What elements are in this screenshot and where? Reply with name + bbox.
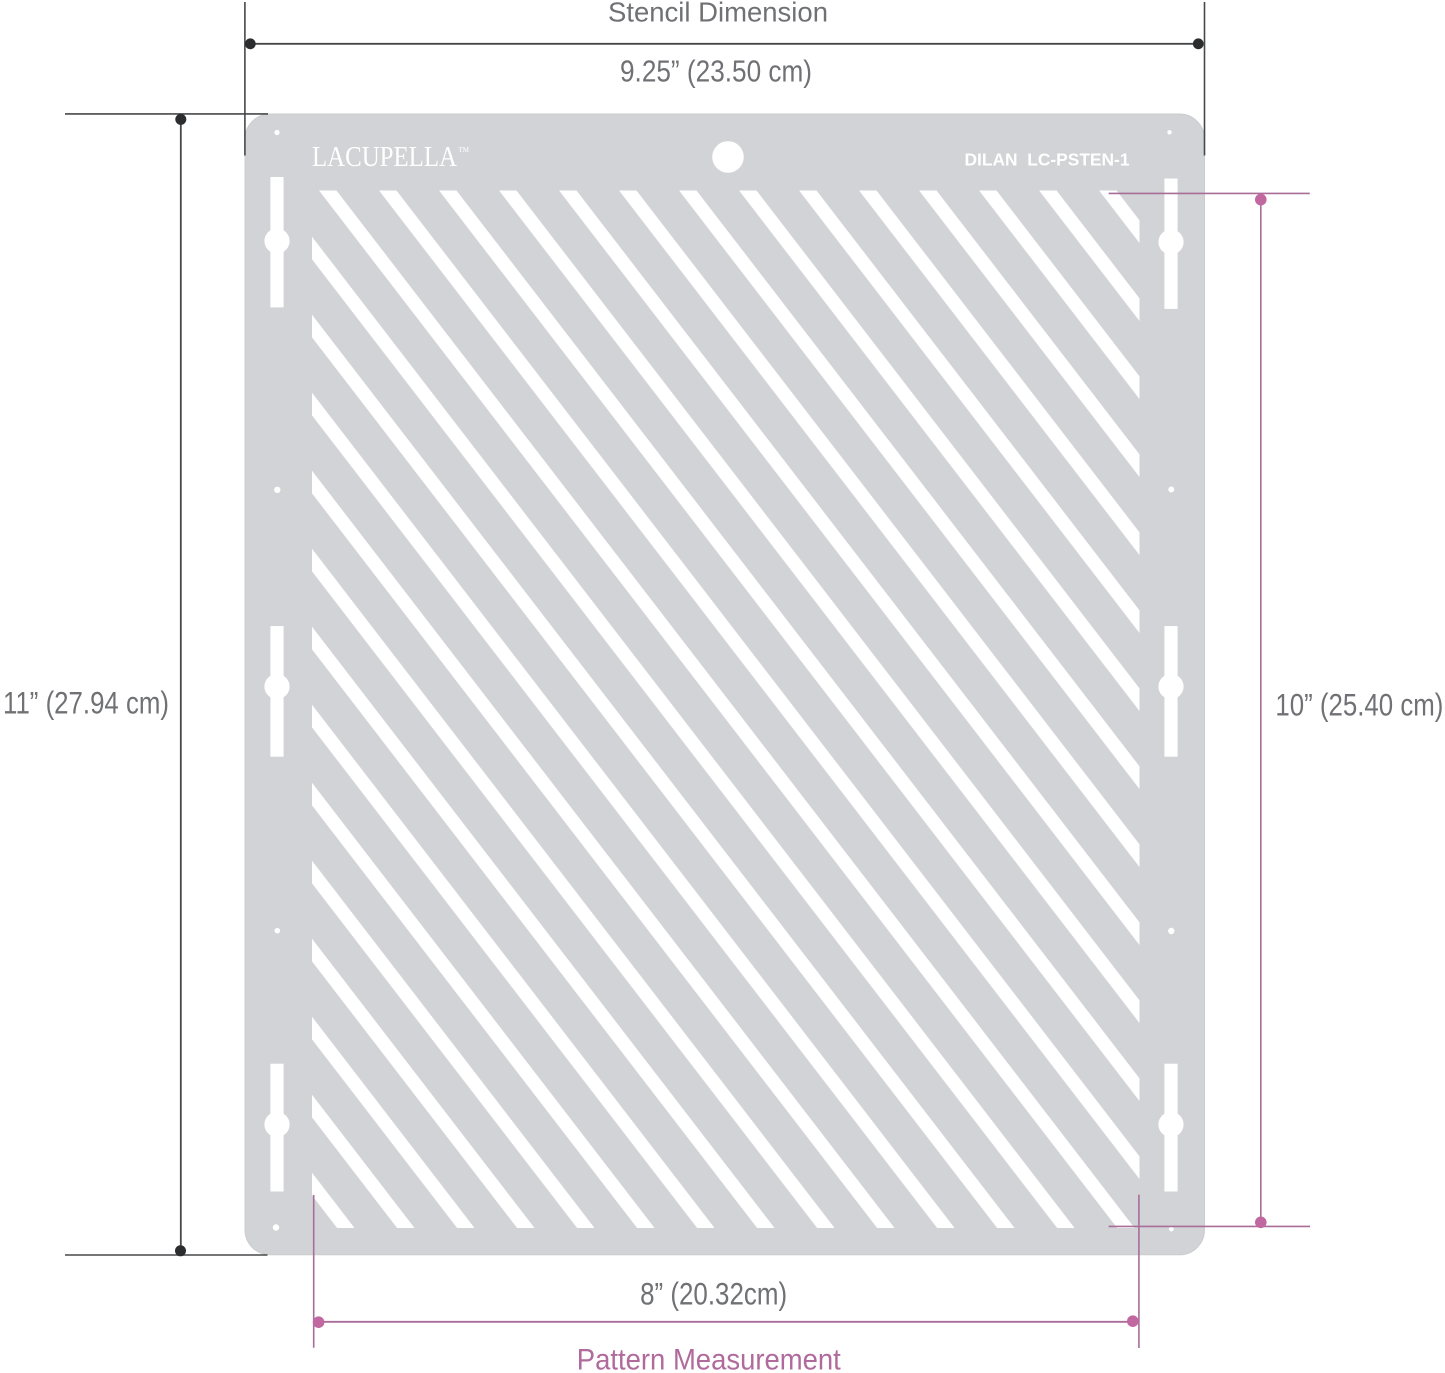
svg-text:Stencil Dimension: Stencil Dimension — [608, 0, 828, 28]
svg-text:TM: TM — [459, 146, 470, 154]
svg-text:8” (20.32cm): 8” (20.32cm) — [640, 1276, 787, 1312]
svg-text:Pattern Measurement: Pattern Measurement — [577, 1344, 842, 1373]
svg-text:10” (25.40 cm): 10” (25.40 cm) — [1275, 686, 1443, 722]
svg-text:LACUPELLA: LACUPELLA — [312, 142, 458, 173]
svg-text:11” (27.94 cm): 11” (27.94 cm) — [3, 684, 169, 720]
svg-text:DILAN LC-PSTEN-1: DILAN LC-PSTEN-1 — [965, 150, 1130, 170]
svg-text:9.25” (23.50 cm): 9.25” (23.50 cm) — [620, 53, 812, 88]
